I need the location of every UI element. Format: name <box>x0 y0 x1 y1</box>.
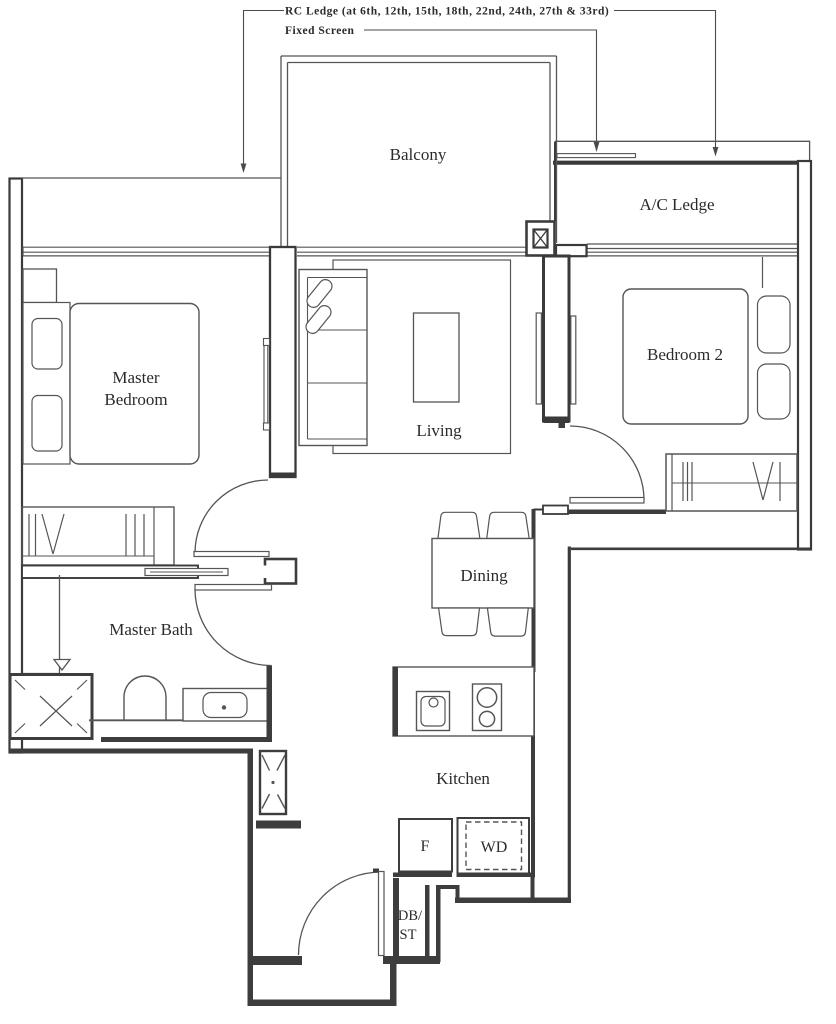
svg-text:Bedroom 2: Bedroom 2 <box>647 345 723 364</box>
svg-text:DB/: DB/ <box>398 908 423 924</box>
svg-text:RC Ledge (at 6th, 12th, 15th,: RC Ledge (at 6th, 12th, 15th, 18th, 22nd… <box>285 6 609 18</box>
svg-text:Balcony: Balcony <box>390 145 447 164</box>
svg-text:F: F <box>421 838 430 855</box>
svg-text:WD: WD <box>481 839 508 856</box>
svg-text:Bedroom: Bedroom <box>104 390 167 409</box>
svg-text:ST: ST <box>400 927 417 943</box>
svg-text:Kitchen: Kitchen <box>436 769 490 788</box>
svg-text:Dining: Dining <box>460 566 508 585</box>
svg-text:Master Bath: Master Bath <box>109 620 193 639</box>
svg-text:Master: Master <box>112 368 160 387</box>
svg-text:Fixed Screen: Fixed Screen <box>285 25 354 37</box>
svg-text:A/C Ledge: A/C Ledge <box>639 195 714 214</box>
svg-text:Living: Living <box>416 421 462 440</box>
